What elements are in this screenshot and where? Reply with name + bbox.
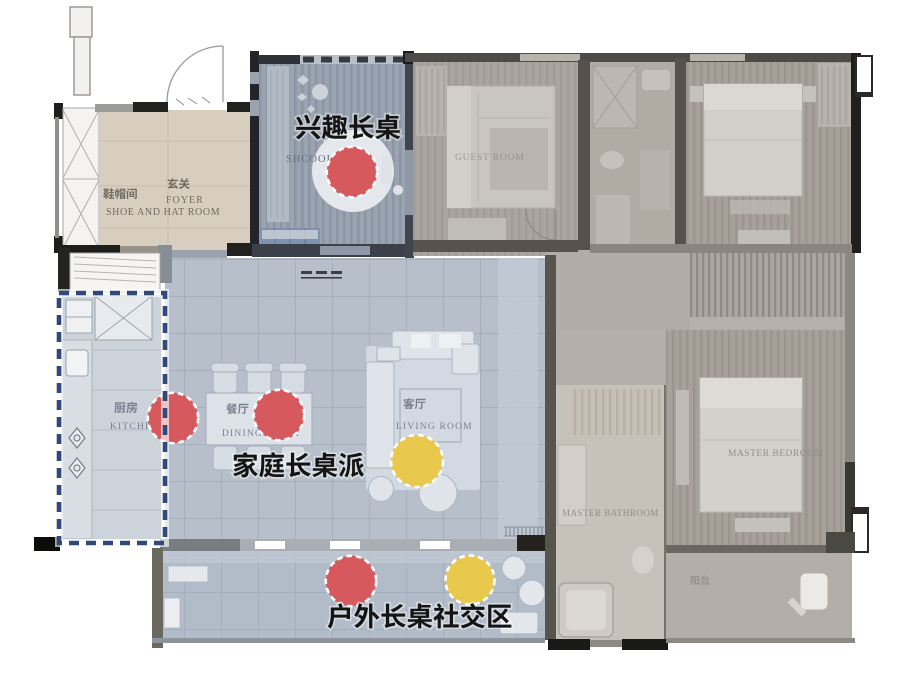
svg-text:FOYER: FOYER bbox=[166, 195, 204, 206]
svg-text:SHOE AND HAT ROOM: SHOE AND HAT ROOM bbox=[106, 207, 220, 218]
svg-text:MASTER BATHROOM: MASTER BATHROOM bbox=[562, 508, 659, 518]
svg-text:MASTER BEDROOM: MASTER BEDROOM bbox=[728, 449, 823, 459]
svg-text:LIVING ROOM: LIVING ROOM bbox=[396, 422, 473, 432]
svg-text:GUEST ROOM: GUEST ROOM bbox=[455, 153, 525, 163]
